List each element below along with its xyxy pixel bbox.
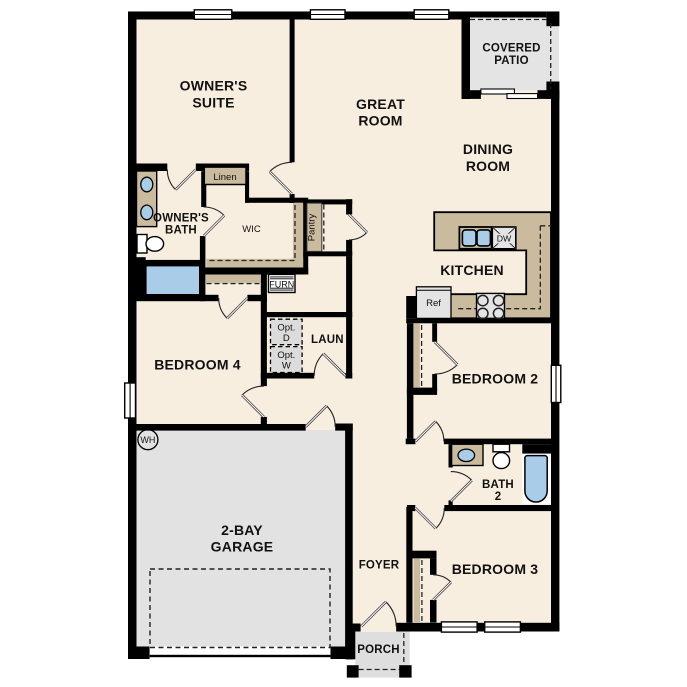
svg-text:2-BAY: 2-BAY [221, 522, 263, 538]
svg-text:W: W [282, 361, 291, 372]
svg-text:Pantry: Pantry [307, 214, 318, 242]
svg-text:WIC: WIC [242, 224, 261, 235]
svg-text:KITCHEN: KITCHEN [440, 262, 504, 278]
svg-text:2: 2 [495, 491, 502, 503]
svg-text:BEDROOM 4: BEDROOM 4 [154, 357, 241, 373]
svg-text:OWNER'S: OWNER'S [180, 78, 248, 94]
svg-text:PORCH: PORCH [357, 644, 400, 656]
svg-text:FURN: FURN [269, 279, 294, 289]
svg-text:FOYER: FOYER [359, 560, 400, 572]
svg-text:OWNER'S: OWNER'S [153, 213, 209, 225]
svg-text:BEDROOM 3: BEDROOM 3 [452, 561, 539, 577]
svg-text:BATH: BATH [165, 225, 197, 237]
svg-text:BATH: BATH [482, 479, 514, 491]
svg-text:LAUN: LAUN [311, 334, 344, 346]
svg-text:PATIO: PATIO [494, 55, 528, 67]
svg-text:Ref: Ref [426, 298, 441, 309]
svg-text:DINING: DINING [463, 141, 513, 157]
svg-text:BEDROOM 2: BEDROOM 2 [452, 371, 539, 387]
svg-text:COVERED: COVERED [482, 43, 540, 55]
svg-text:SUITE: SUITE [192, 95, 234, 111]
svg-text:DW: DW [497, 234, 512, 244]
svg-text:D: D [283, 333, 290, 344]
svg-text:WH: WH [140, 435, 155, 445]
svg-text:ROOM: ROOM [466, 158, 510, 174]
svg-text:GARAGE: GARAGE [211, 539, 274, 555]
svg-text:ROOM: ROOM [358, 113, 402, 129]
svg-text:GREAT: GREAT [356, 96, 405, 112]
svg-text:Linen: Linen [213, 172, 236, 183]
